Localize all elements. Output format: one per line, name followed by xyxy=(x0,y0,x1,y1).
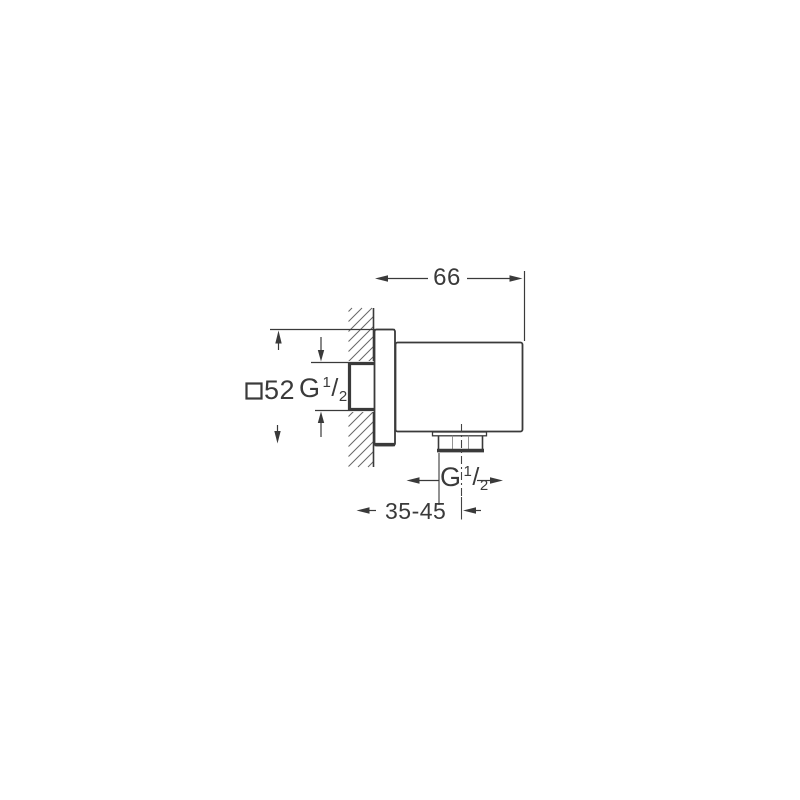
dim-inlet-arrow-up xyxy=(318,412,324,424)
dim-outlet-arrow-right xyxy=(490,477,503,483)
inlet-socket xyxy=(347,361,375,412)
dim-66-arrow-right xyxy=(510,275,523,282)
outlet-thread-slash: / xyxy=(472,463,479,491)
dim-66-label: 66 xyxy=(425,266,469,290)
inlet-thread-label: G1/2 xyxy=(299,375,348,402)
square-section-icon xyxy=(247,384,262,399)
dim-52-label: 52 xyxy=(264,377,295,404)
dim-outlet-arrow-left xyxy=(407,477,420,483)
dim-depth-arrow-right xyxy=(463,507,476,513)
inlet-thread-g: G xyxy=(299,373,321,403)
dim-depth-arrow-left xyxy=(357,507,370,513)
inlet-thread-sub: 2 xyxy=(339,388,348,405)
outlet-collar xyxy=(433,432,487,436)
outlet-hex-nut xyxy=(437,436,484,451)
outlet-thread-label: G1/2 xyxy=(440,464,489,491)
drawing-linework xyxy=(0,0,800,800)
outlet-nipple xyxy=(433,432,487,451)
escutcheon-plate xyxy=(375,330,396,446)
dim-52-arrow-down xyxy=(274,431,280,444)
inlet-thread-slash: / xyxy=(331,374,338,402)
union-body xyxy=(396,343,523,432)
dim-inlet-arrow-down xyxy=(318,350,324,362)
dim-52-arrow-up xyxy=(275,331,281,344)
outlet-thread-g: G xyxy=(440,462,462,492)
outlet-thread-sub: 2 xyxy=(480,477,489,494)
dim-depth-label: 35-45 xyxy=(385,500,446,523)
technical-drawing: 66 52 G1/2 G1/2 35-45 xyxy=(0,0,800,800)
